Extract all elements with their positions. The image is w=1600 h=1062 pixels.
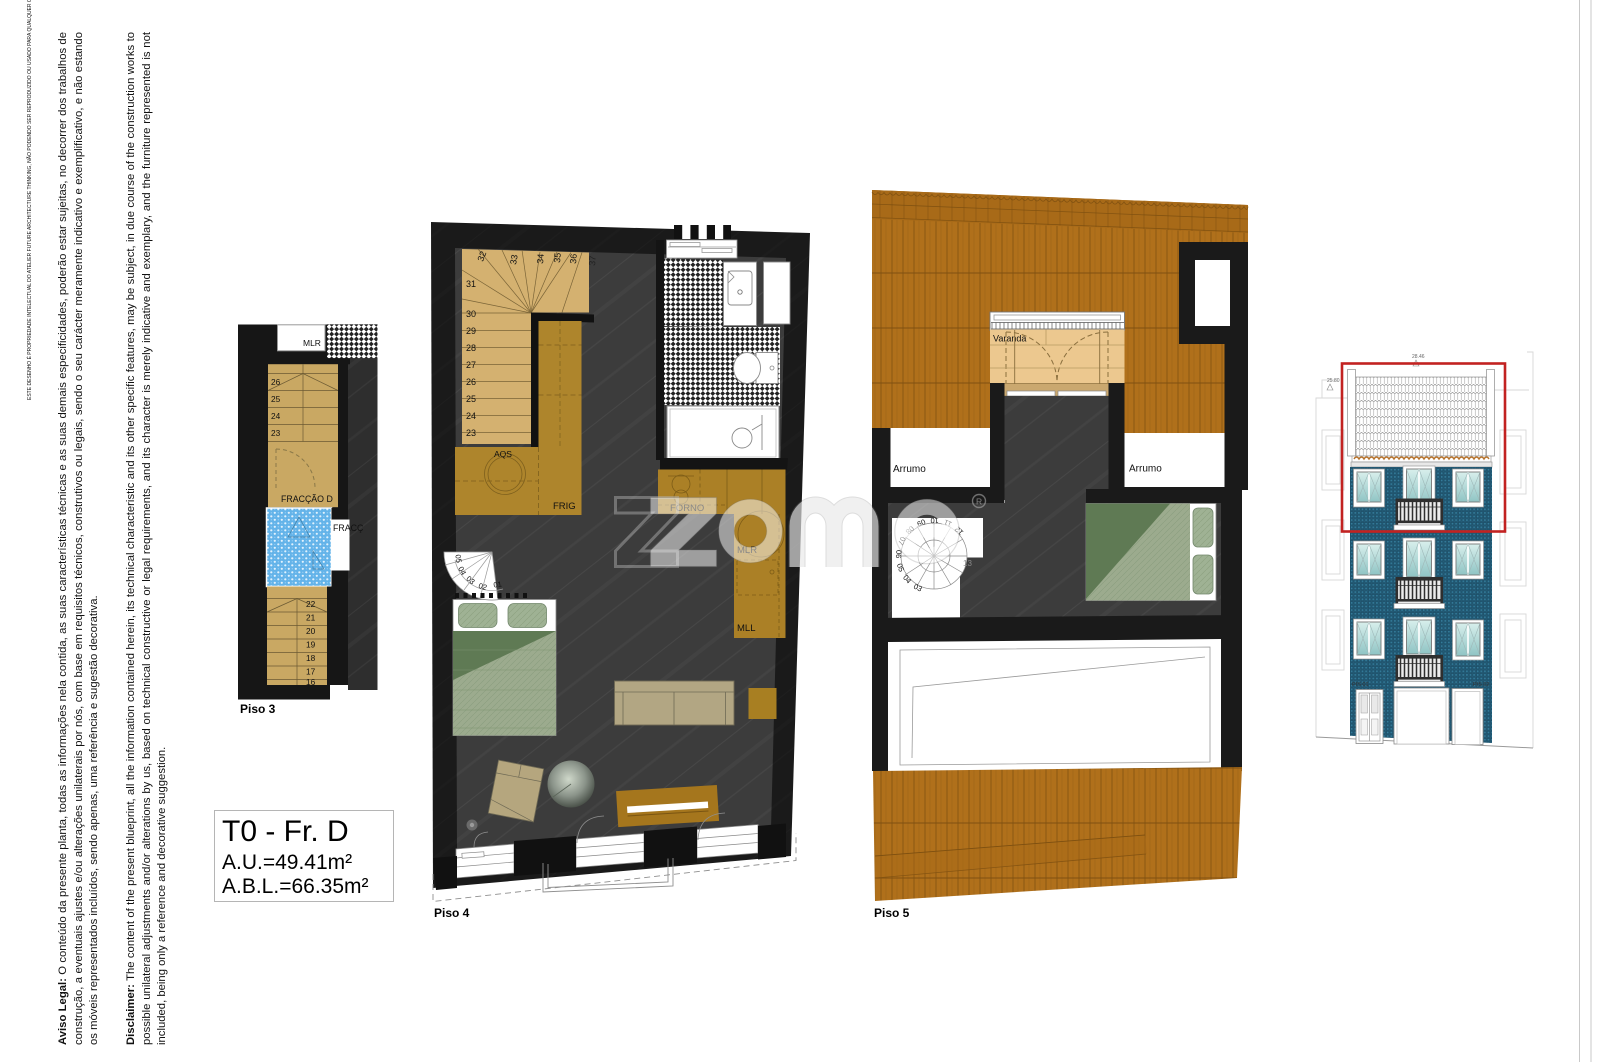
- svg-text:PIS 01: PIS 01: [1352, 682, 1369, 688]
- svg-text:33: 33: [508, 254, 520, 266]
- svg-text:16: 16: [306, 677, 316, 687]
- svg-text:30: 30: [466, 309, 476, 319]
- svg-text:25.80: 25.80: [1327, 378, 1340, 384]
- svg-text:FRACÇ: FRACÇ: [333, 523, 364, 533]
- svg-text:21: 21: [306, 613, 316, 623]
- svg-text:13: 13: [963, 559, 972, 568]
- svg-text:22: 22: [306, 599, 316, 609]
- svg-text:28.46: 28.46: [1412, 354, 1425, 360]
- svg-text:MLL: MLL: [737, 623, 755, 634]
- svg-text:28: 28: [466, 343, 476, 353]
- svg-text:23: 23: [271, 428, 281, 438]
- svg-text:24: 24: [466, 411, 476, 421]
- svg-text:19: 19: [306, 640, 316, 650]
- svg-text:29: 29: [466, 326, 476, 336]
- svg-text:PIS 02: PIS 02: [1473, 682, 1490, 688]
- svg-text:MLR: MLR: [303, 338, 321, 348]
- svg-text:FRIG: FRIG: [553, 501, 576, 512]
- svg-text:31: 31: [466, 279, 476, 289]
- svg-text:20: 20: [306, 626, 316, 636]
- svg-text:23: 23: [466, 428, 476, 438]
- svg-text:26: 26: [466, 377, 476, 387]
- svg-text:37: 37: [587, 255, 598, 266]
- svg-text:Arrumo: Arrumo: [1129, 464, 1162, 475]
- svg-text:26: 26: [271, 377, 281, 387]
- svg-text:R: R: [976, 497, 982, 507]
- svg-text:AQS: AQS: [494, 449, 512, 459]
- svg-text:34: 34: [535, 253, 546, 264]
- svg-text:25: 25: [271, 394, 281, 404]
- svg-text:Arrumo: Arrumo: [893, 464, 926, 475]
- svg-text:05: 05: [453, 554, 463, 564]
- svg-text:01: 01: [493, 579, 503, 589]
- svg-text:18: 18: [306, 653, 316, 663]
- svg-text:FRACÇÃO D: FRACÇÃO D: [281, 494, 333, 504]
- svg-text:17: 17: [306, 667, 316, 677]
- svg-text:24: 24: [271, 411, 281, 421]
- svg-text:36: 36: [568, 253, 579, 264]
- svg-text:25: 25: [466, 394, 476, 404]
- svg-text:Varanda: Varanda: [993, 334, 1026, 344]
- svg-text:35: 35: [552, 252, 563, 263]
- svg-text:27: 27: [466, 360, 476, 370]
